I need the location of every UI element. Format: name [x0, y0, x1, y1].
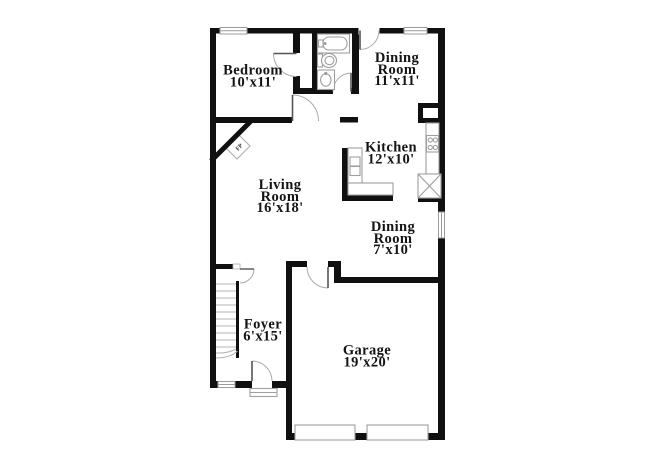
room-dims: 10'x11' — [223, 77, 283, 89]
room-label-bedroom: Bedroom 10'x11' — [223, 66, 283, 89]
wall-kitchen-peninsula-horizontal — [342, 195, 393, 201]
stair-rail — [236, 281, 239, 358]
wall-kitchen-peninsula-vertical — [342, 148, 348, 201]
window-bedroom-top — [220, 28, 247, 35]
door-hall-living — [293, 95, 319, 121]
wall-garage-left — [286, 261, 292, 440]
window-foyer-front — [218, 382, 235, 388]
bathroom-sink — [318, 70, 335, 90]
front-stoop — [250, 389, 277, 397]
floor-plan: FP — [0, 0, 650, 473]
window-right-wall — [439, 212, 445, 238]
room-dims: 19'x20' — [343, 357, 391, 369]
floor-plan-drawing: FP — [0, 0, 650, 473]
door-front-entry — [252, 361, 272, 381]
stove — [427, 136, 439, 153]
room-dims: 16'x18' — [256, 203, 303, 215]
garage-door-left — [295, 425, 355, 440]
room-dims: 7'x10' — [371, 245, 415, 257]
bathtub — [318, 34, 350, 53]
room-dims: 12'x10' — [365, 154, 417, 166]
door-garage-entry — [307, 267, 328, 288]
garage-door-right — [367, 425, 428, 440]
wall-dining-lower-bottom — [334, 277, 445, 283]
window-dining-top — [404, 28, 427, 35]
room-dims: 11'x11' — [374, 76, 420, 88]
room-label-garage: Garage 19'x20' — [343, 346, 391, 369]
fireplace-diagonal-wall — [211, 120, 252, 161]
wall-bathroom-right — [352, 28, 359, 94]
toilet — [318, 54, 337, 68]
washer-box — [418, 174, 441, 198]
room-label-foyer: Foyer 6'x15' — [243, 320, 282, 343]
staircase — [216, 284, 238, 358]
wall-kitchen-stub — [340, 117, 358, 123]
room-dims: 6'x15' — [243, 331, 282, 343]
wall-bathroom-left — [312, 28, 317, 94]
door-foyer-closet — [240, 269, 254, 283]
wall-garage-top — [286, 261, 307, 267]
room-label-living-room: Living Room 16'x18' — [256, 180, 303, 215]
fireplace: FP — [211, 120, 252, 161]
room-label-kitchen: Kitchen 12'x10' — [365, 143, 417, 166]
pantry-closet — [421, 106, 441, 121]
room-label-dining-room-lower: Dining Room 7'x10' — [371, 222, 415, 257]
room-label-dining-room-upper: Dining Room 11'x11' — [374, 53, 420, 88]
wall-left — [210, 28, 216, 388]
